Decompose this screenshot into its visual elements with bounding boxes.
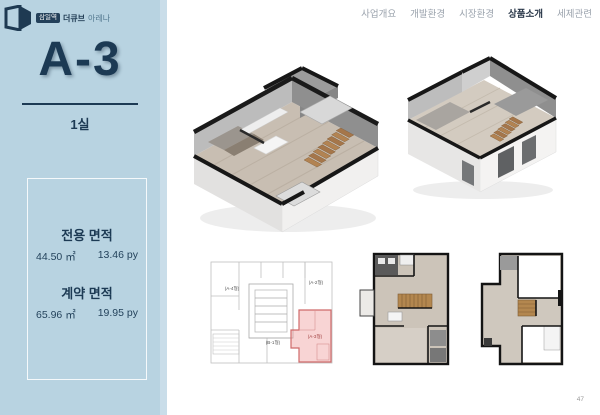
- plan-lower-body: [360, 254, 448, 364]
- brand-badge: 삼일역: [36, 13, 60, 22]
- keyplan-label-a3: (A-3형): [308, 333, 323, 339]
- unit-type-title: A-3: [0, 32, 160, 87]
- isometric-lower-floor-svg: [180, 26, 395, 240]
- keyplan-core: [249, 284, 293, 338]
- sidebar: 삼일역 더큐브 아레나 A-3 1실 전용 면적 44.50 ㎡ 13.46 p…: [0, 0, 160, 415]
- nav-item-business-overview[interactable]: 사업개요: [361, 6, 396, 20]
- sidebar-edge-strip: [160, 0, 167, 415]
- isometric-render-upper-floor: [398, 40, 568, 200]
- building-key-plan: (A-4형) (A-2형) (A-3형) (B-1형): [205, 252, 338, 378]
- key-plan-svg: (A-4형) (A-2형) (A-3형) (B-1형): [205, 252, 338, 378]
- keyplan-label-b1: (B-1형): [266, 339, 281, 345]
- page-number: 47: [577, 396, 584, 403]
- exclusive-area-label: 전용 면적: [28, 225, 146, 244]
- floor-plan-upper: [470, 250, 566, 368]
- top-navigation: 사업개요 개발환경 시장환경 상품소개 세제관련: [361, 6, 592, 20]
- plan-upper-wall-block: [558, 290, 562, 306]
- contract-area-py: 19.95 py: [98, 307, 138, 322]
- floor-plan-lower-svg: [358, 250, 452, 368]
- contract-area-sqm: 65.96 ㎡: [36, 307, 76, 322]
- exclusive-area-py: 13.46 py: [98, 249, 138, 264]
- isometric-upper-floor-svg: [398, 40, 568, 200]
- isometric-render-lower-floor: [180, 26, 395, 240]
- nav-item-product-intro[interactable]: 상품소개: [508, 6, 543, 20]
- brand-suffix: 아레나: [88, 13, 110, 24]
- exclusive-area-values: 44.50 ㎡ 13.46 py: [36, 249, 138, 264]
- plan-lower-stairs: [398, 294, 432, 308]
- brand-name: 더큐브: [63, 13, 85, 24]
- contract-area-label: 계약 면적: [28, 283, 146, 302]
- floor-plan-lower: [358, 250, 452, 368]
- nav-item-development-env[interactable]: 개발환경: [410, 6, 445, 20]
- keyplan-label-a2: (A-2형): [309, 279, 324, 285]
- room-count: 1실: [0, 114, 160, 133]
- title-divider: [22, 103, 138, 105]
- floor-plan-upper-svg: [470, 250, 566, 368]
- keyplan-hatch-area: [213, 334, 239, 354]
- nav-item-tax-info[interactable]: 세제관련: [557, 6, 592, 20]
- contract-area-values: 65.96 ㎡ 19.95 py: [36, 307, 138, 322]
- plan-upper-stairs: [518, 300, 536, 316]
- keyplan-label-a4: (A-4형): [225, 285, 240, 291]
- cube-logo-icon: [3, 5, 33, 31]
- exclusive-area-sqm: 44.50 ㎡: [36, 249, 76, 264]
- nav-item-market-env[interactable]: 시장환경: [459, 6, 494, 20]
- area-info-box: 전용 면적 44.50 ㎡ 13.46 py 계약 면적 65.96 ㎡ 19.…: [27, 178, 147, 380]
- brand: 삼일역 더큐브 아레나: [3, 5, 110, 31]
